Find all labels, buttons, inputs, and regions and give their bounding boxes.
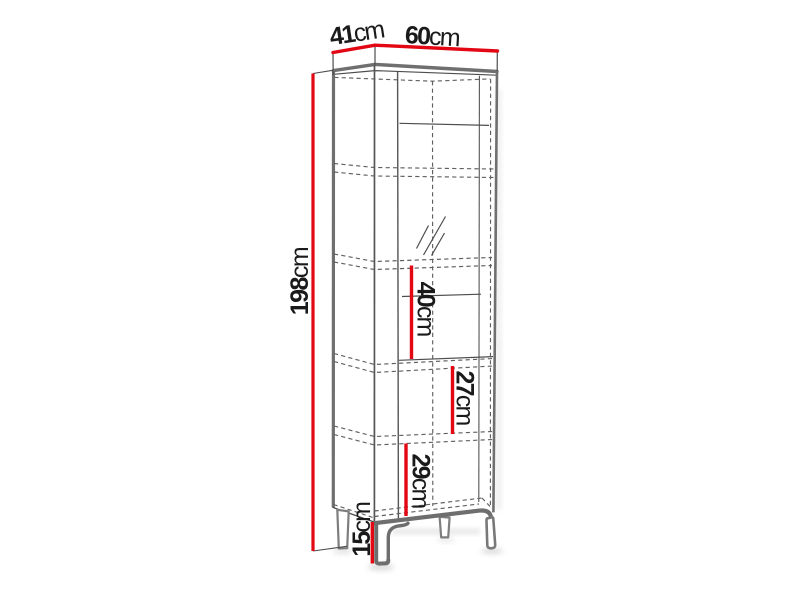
svg-text:29cm: 29cm [407,454,435,509]
svg-text:40cm: 40cm [412,282,440,337]
svg-text:15cm: 15cm [348,502,376,557]
svg-text:27cm: 27cm [451,371,479,426]
svg-text:198cm: 198cm [286,247,314,315]
svg-text:60cm: 60cm [404,21,461,52]
